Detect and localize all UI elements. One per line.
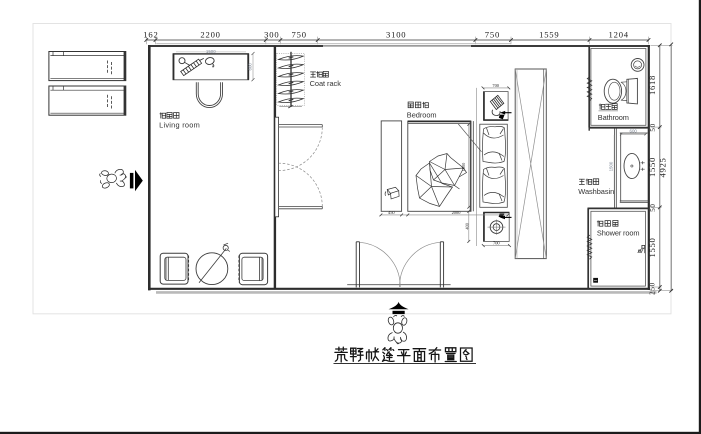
svg-text:Coat rack: Coat rack	[310, 79, 342, 88]
svg-text:600: 600	[630, 129, 638, 134]
svg-text:50: 50	[649, 123, 657, 131]
svg-text:450: 450	[388, 210, 395, 215]
svg-text:700: 700	[493, 241, 500, 246]
svg-text:600: 600	[248, 63, 253, 71]
svg-text:750: 750	[292, 29, 307, 39]
svg-text:700: 700	[492, 83, 499, 88]
svg-text:162: 162	[143, 29, 158, 39]
svg-text:750: 750	[485, 29, 500, 39]
svg-text:1500: 1500	[206, 49, 216, 54]
svg-text:2000: 2000	[452, 210, 462, 215]
svg-text:1559: 1559	[539, 29, 559, 39]
svg-text:3100: 3100	[386, 29, 406, 39]
svg-text:1204: 1204	[609, 29, 629, 39]
svg-text:Bathroom: Bathroom	[598, 113, 629, 122]
svg-text:2200: 2200	[200, 29, 220, 39]
svg-text:Shower room: Shower room	[597, 229, 640, 238]
svg-text:4925: 4925	[658, 158, 668, 178]
svg-text:300: 300	[264, 29, 279, 39]
svg-text:Living room: Living room	[159, 120, 200, 129]
svg-text:400: 400	[464, 222, 469, 229]
svg-text:1500: 1500	[608, 161, 613, 171]
svg-text:50: 50	[649, 203, 657, 211]
svg-text:Washbasin: Washbasin	[578, 187, 614, 196]
svg-text:1800: 1800	[461, 162, 466, 172]
svg-text:Bedroom: Bedroom	[407, 111, 437, 120]
